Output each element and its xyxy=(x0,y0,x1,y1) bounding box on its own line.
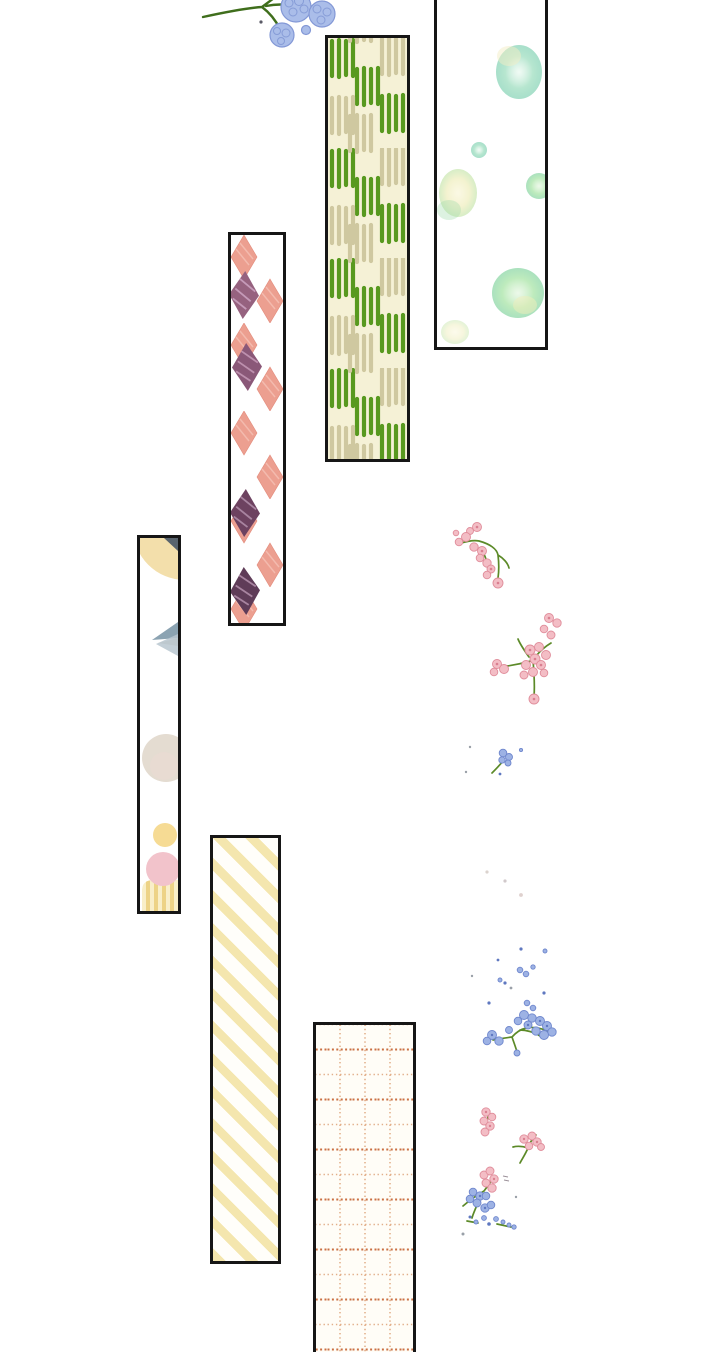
blue-sprig-small xyxy=(465,746,523,776)
pink-chain xyxy=(480,1108,496,1136)
pink-flower-cluster xyxy=(490,614,561,705)
pink-sprig-lower xyxy=(513,1132,545,1163)
blue-flower-cluster xyxy=(471,947,556,1056)
faint-specks xyxy=(485,870,522,896)
comic-transition-panel xyxy=(0,0,720,1352)
hydrangea-flower-cluster xyxy=(203,0,335,47)
pink-sprig-upper xyxy=(453,523,509,589)
mixed-blue-pink-cluster xyxy=(462,1167,518,1236)
flower-overlay xyxy=(0,0,720,1352)
